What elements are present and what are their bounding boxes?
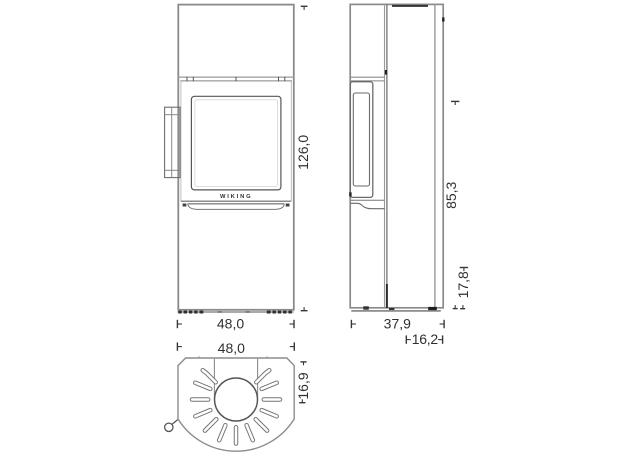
svg-text:48,0: 48,0	[218, 340, 245, 356]
svg-text:126,0: 126,0	[295, 135, 311, 170]
svg-text:16,9: 16,9	[295, 372, 311, 399]
svg-text:48,0: 48,0	[217, 316, 244, 332]
svg-text:WIKING: WIKING	[220, 194, 252, 200]
svg-text:85,3: 85,3	[443, 181, 459, 208]
svg-text:37,9: 37,9	[384, 316, 411, 332]
svg-text:17,8: 17,8	[455, 271, 471, 298]
svg-text:16,2: 16,2	[412, 331, 439, 347]
